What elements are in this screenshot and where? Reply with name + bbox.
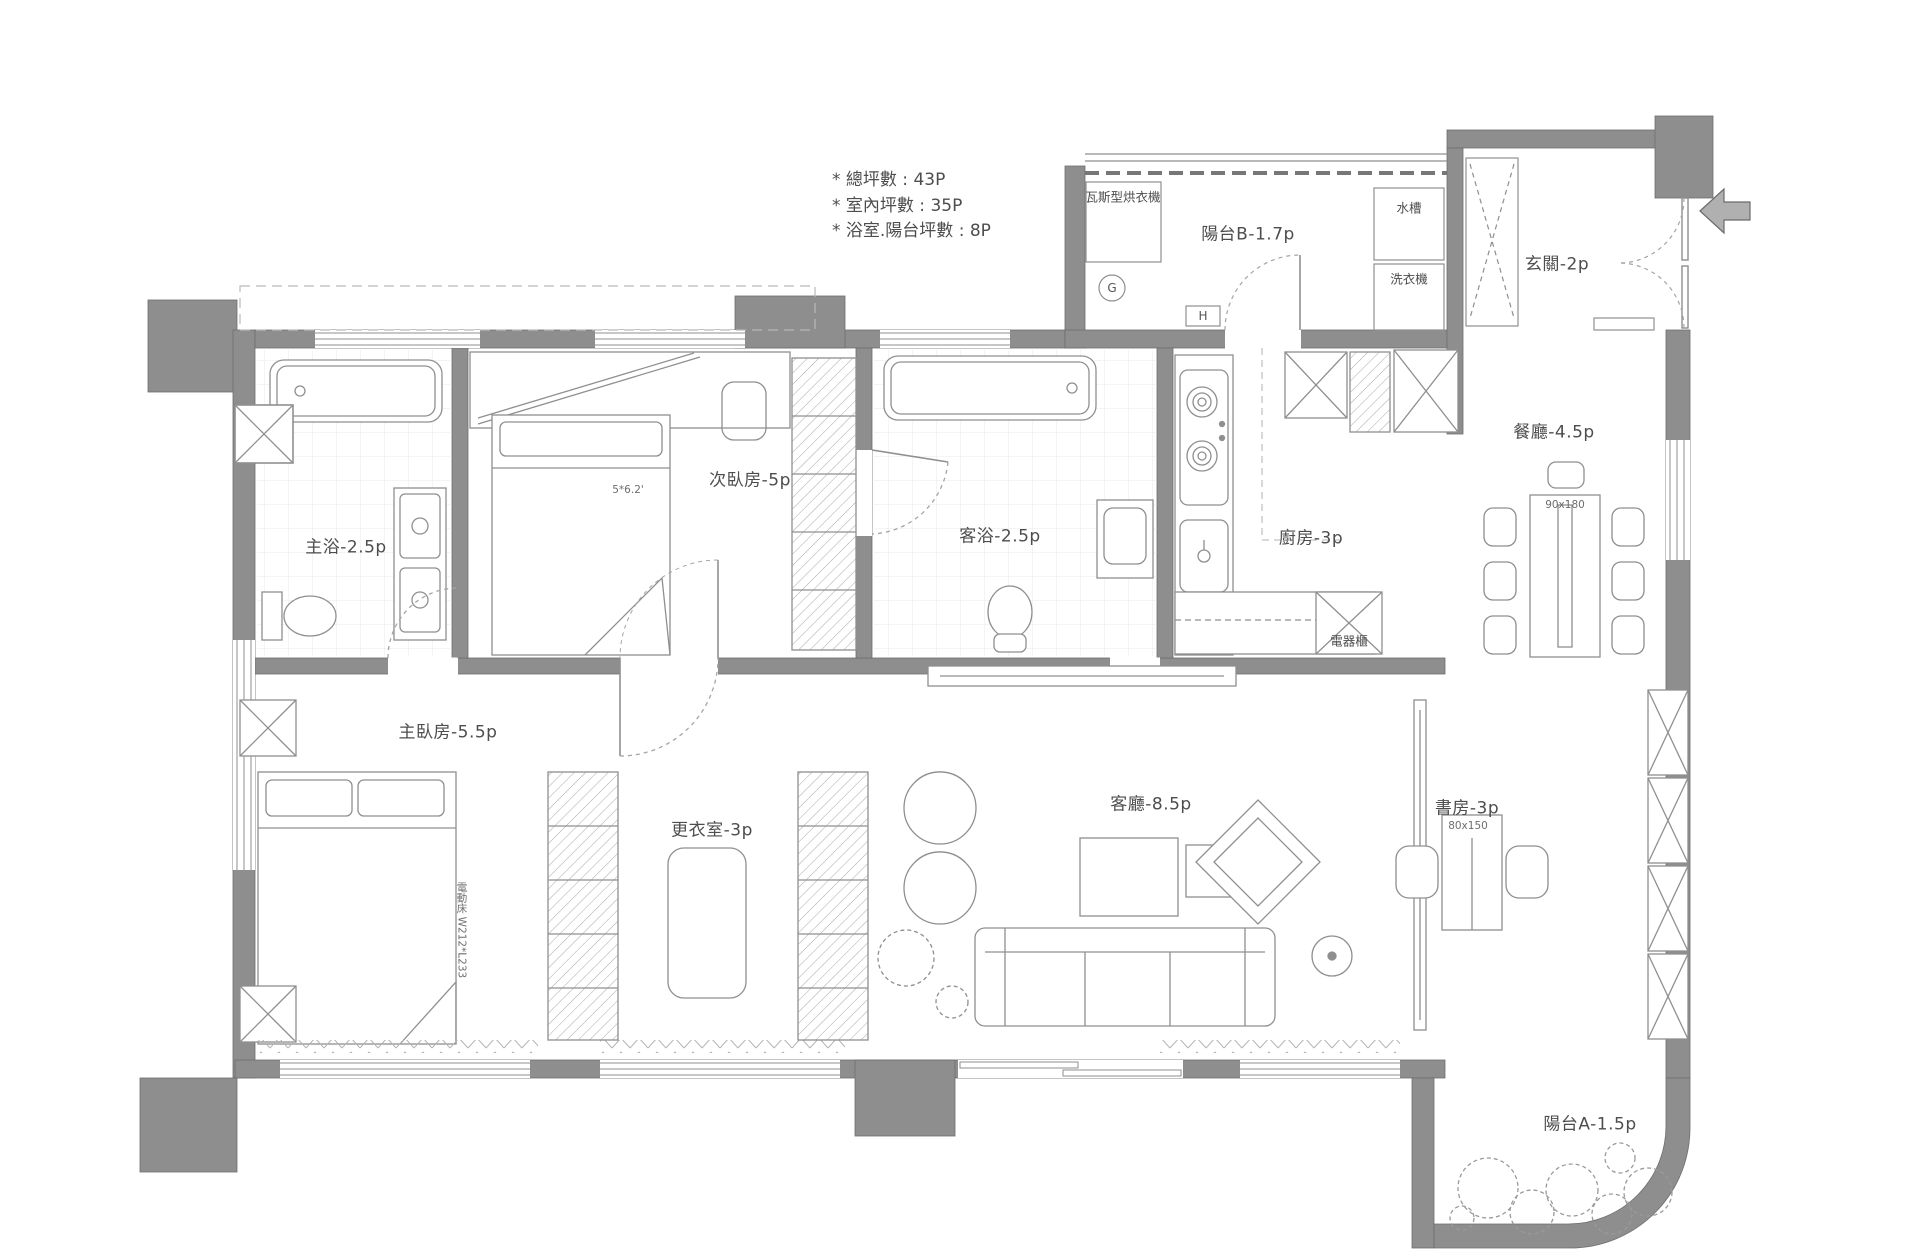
plant bbox=[878, 930, 934, 986]
dining-table bbox=[1530, 495, 1600, 657]
bathtub bbox=[884, 356, 1096, 420]
closet-island bbox=[668, 848, 746, 998]
fixture-label-gas-dryer: 瓦斯型烘衣機 bbox=[1085, 187, 1160, 206]
wall-foyer-top bbox=[1447, 130, 1669, 148]
nightstand-box bbox=[240, 700, 296, 756]
fixture-label-washer: 洗衣機 bbox=[1390, 269, 1428, 288]
dining-chair bbox=[1484, 616, 1516, 654]
wardrobe-left bbox=[548, 772, 618, 1040]
sliding-door-living bbox=[958, 1060, 1183, 1078]
plant bbox=[1458, 1158, 1518, 1218]
window-top-1 bbox=[315, 330, 480, 348]
room-label-study: 書房-3p bbox=[1435, 794, 1499, 819]
fridge-box bbox=[1285, 352, 1347, 418]
window-bottom-2 bbox=[600, 1060, 840, 1078]
wall-block-top bbox=[735, 296, 845, 348]
dim-label-dining-table: 90x180 bbox=[1545, 499, 1585, 511]
wall-balconya-curved bbox=[1434, 1078, 1690, 1248]
water-meter-label: H bbox=[1198, 309, 1207, 323]
kitchen bbox=[1175, 348, 1458, 655]
corner-block-bottom-left bbox=[140, 1078, 237, 1172]
floorplan-canvas: * 總坪數 : 43P * 室內坪數 : 35P * 浴室.陽台坪數 : 8P … bbox=[0, 0, 1920, 1258]
living-room bbox=[878, 666, 1352, 1026]
tall-cabinet-box bbox=[1394, 350, 1458, 432]
cabinet-hatch bbox=[1350, 352, 1390, 432]
wardrobe-column bbox=[792, 358, 856, 650]
window-right-dining bbox=[1666, 440, 1690, 560]
dining-chair bbox=[1484, 562, 1516, 600]
door-arc bbox=[1225, 255, 1300, 330]
toilet bbox=[988, 586, 1032, 652]
wall-masterbath-right bbox=[452, 348, 468, 658]
stove bbox=[1180, 370, 1228, 505]
toilet bbox=[262, 592, 336, 640]
plant bbox=[936, 986, 968, 1018]
wall-balconya-left bbox=[1412, 1078, 1434, 1248]
bed-double bbox=[492, 415, 670, 655]
dim-label-master-bed: 電動床 W212*L233 bbox=[455, 882, 470, 978]
lounge-chair bbox=[904, 852, 976, 924]
dining-chair bbox=[1484, 508, 1516, 546]
dining-chair bbox=[1612, 562, 1644, 600]
column-block-bottom bbox=[855, 1060, 955, 1136]
curtain-zigzag bbox=[258, 1040, 538, 1053]
master-bath bbox=[235, 350, 458, 658]
second-bedroom bbox=[470, 352, 856, 655]
curtain-zigzag bbox=[1160, 1040, 1400, 1053]
plant bbox=[1605, 1143, 1635, 1173]
dining-chair bbox=[1548, 462, 1584, 488]
room-label-dining: 餐廳-4.5p bbox=[1513, 418, 1594, 443]
room-label-master-bedroom: 主臥房-5.5p bbox=[399, 718, 498, 743]
bathtub bbox=[270, 360, 442, 422]
annotation-bath-balcony: * 浴室.陽台坪數 : 8P bbox=[832, 219, 991, 245]
dining bbox=[1484, 462, 1644, 657]
fixture-label-appliance-cabinet: 電器櫃 bbox=[1330, 631, 1368, 650]
nightstand-box bbox=[240, 986, 296, 1042]
room-label-kitchen: 廚房-3p bbox=[1279, 524, 1343, 549]
window-bottom-3 bbox=[1240, 1060, 1400, 1078]
room-label-foyer: 玄關-2p bbox=[1525, 250, 1589, 275]
desk-chair bbox=[1396, 846, 1438, 898]
desk-chair bbox=[1506, 846, 1548, 898]
wall-balconyb-left bbox=[1065, 166, 1085, 348]
gas-meter-label: G bbox=[1107, 281, 1116, 295]
curtain-zigzag bbox=[600, 1040, 845, 1053]
room-label-closet: 更衣室-3p bbox=[671, 816, 753, 841]
window-top-2 bbox=[595, 330, 745, 348]
entry-sill bbox=[1594, 318, 1654, 330]
annotation-indoor: * 室內坪數 : 35P bbox=[832, 194, 991, 220]
entry-door-arc bbox=[1619, 198, 1684, 263]
sofa bbox=[975, 928, 1275, 1026]
kitchen-sink bbox=[1180, 520, 1228, 592]
window-bottom-1 bbox=[280, 1060, 530, 1078]
wardrobe-right bbox=[798, 772, 868, 1040]
room-label-master-bath: 主浴-2.5p bbox=[305, 533, 386, 558]
dining-chair bbox=[1612, 508, 1644, 546]
window-top-3 bbox=[880, 330, 1010, 348]
corner-block-top-right bbox=[1655, 116, 1713, 198]
guest-bath bbox=[872, 350, 1157, 656]
fixture-label-sink: 水槽 bbox=[1396, 198, 1421, 217]
dim-label-bed-note: 5*6.2' bbox=[612, 484, 644, 496]
shaft-box bbox=[235, 405, 293, 463]
room-label-guest-bath: 客浴-2.5p bbox=[959, 522, 1040, 547]
corner-block-top-left bbox=[148, 300, 237, 392]
coffee-table bbox=[1080, 838, 1178, 916]
study bbox=[1396, 690, 1688, 1039]
annotation-total: * 總坪數 : 43P bbox=[832, 168, 991, 194]
dim-label-desk: 80x150 bbox=[1448, 820, 1488, 832]
wall-kitchen-left bbox=[1157, 348, 1173, 658]
room-label-balcony-a: 陽台A-1.5p bbox=[1543, 1110, 1636, 1135]
walk-in-closet bbox=[548, 658, 868, 1040]
area-annotations: * 總坪數 : 43P * 室內坪數 : 35P * 浴室.陽台坪數 : 8P bbox=[832, 168, 991, 245]
room-label-balcony-b: 陽台B-1.7p bbox=[1201, 220, 1295, 245]
room-label-living: 客廳-8.5p bbox=[1110, 790, 1191, 815]
dashed-awning-outline bbox=[240, 286, 815, 330]
armchair-rotated bbox=[1196, 800, 1320, 924]
dining-chair bbox=[1612, 616, 1644, 654]
lounge-chair bbox=[904, 772, 976, 844]
chair bbox=[722, 382, 766, 440]
room-label-second-bedroom: 次臥房-5p bbox=[709, 466, 791, 491]
